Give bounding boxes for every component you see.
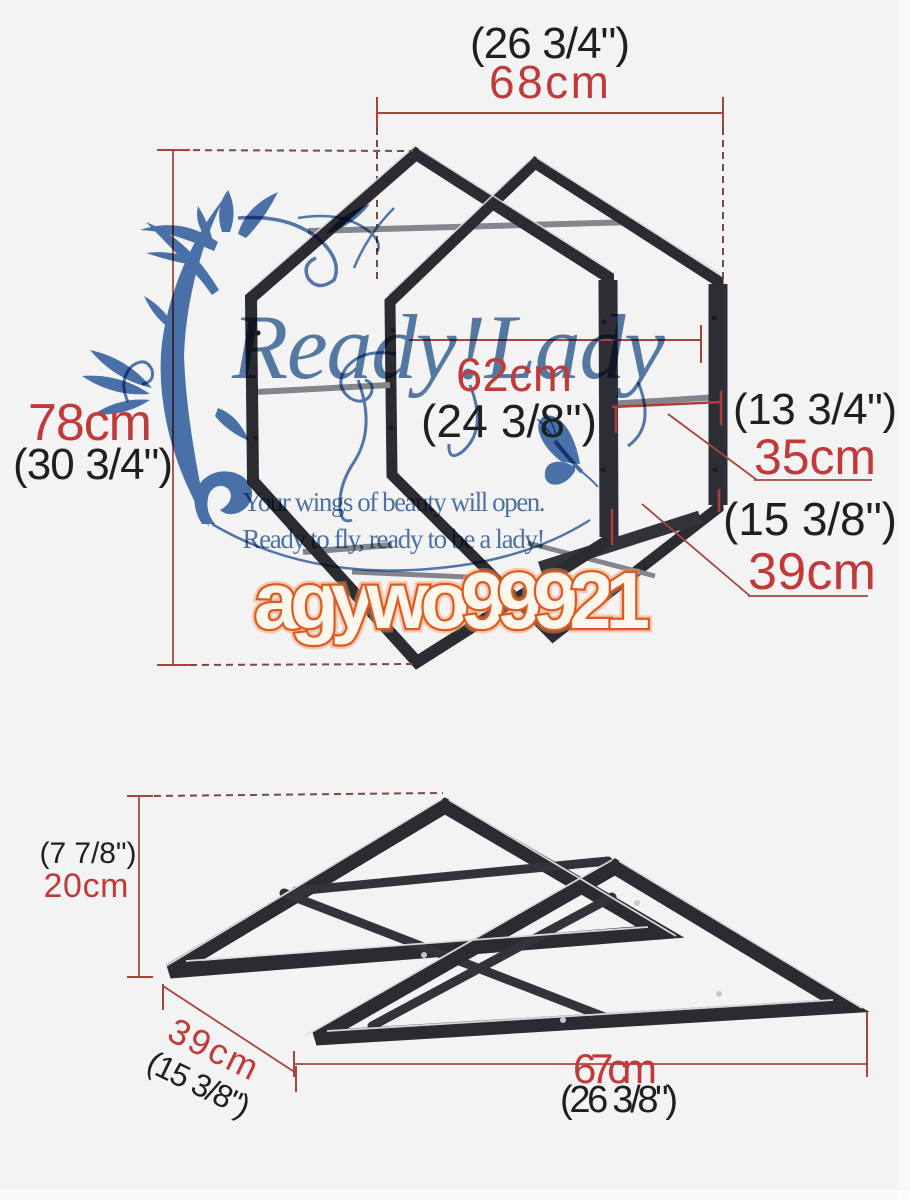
svg-text:Ready to fly, ready to be a la: Ready to fly, ready to be a lady! (243, 524, 546, 554)
svg-text:35cm: 35cm (754, 429, 876, 485)
svg-text:Ready!Lady: Ready!Lady (231, 296, 665, 398)
svg-text:39cm: 39cm (748, 543, 876, 601)
svg-text:62cm: 62cm (456, 348, 572, 401)
svg-text:(24 3/8"): (24 3/8") (421, 395, 597, 447)
svg-text:68cm: 68cm (489, 56, 609, 108)
svg-text:(7 7/8"): (7 7/8") (40, 837, 137, 870)
svg-text:Your wings of beauty will open: Your wings of beauty will open. (243, 487, 546, 517)
svg-text:(26 3/8"): (26 3/8") (560, 1079, 678, 1121)
svg-text:(13 3/4"): (13 3/4") (733, 385, 897, 434)
svg-text:(15 3/8"): (15 3/8") (723, 493, 897, 545)
svg-text:agywo99921: agywo99921 (254, 556, 650, 645)
svg-text:(30 3/4"): (30 3/4") (13, 440, 173, 489)
svg-text:20cm: 20cm (44, 867, 129, 905)
